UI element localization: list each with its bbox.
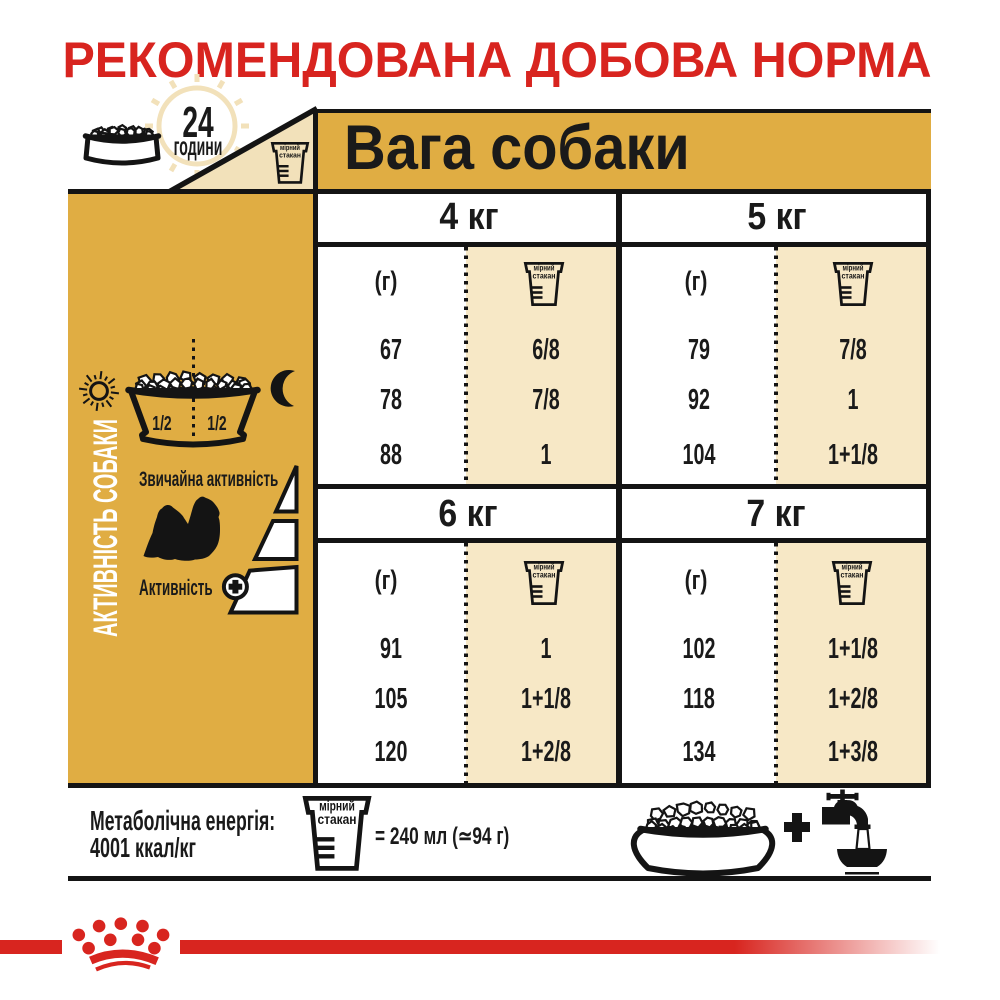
svg-text:стакан: стакан — [533, 271, 556, 280]
svg-text:стакан: стакан — [841, 570, 864, 579]
svg-text:стакан: стакан — [317, 812, 356, 827]
svg-text:стакан: стакан — [279, 151, 301, 160]
svg-text:стакан: стакан — [532, 570, 555, 579]
svg-text:стакан: стакан — [841, 271, 864, 280]
